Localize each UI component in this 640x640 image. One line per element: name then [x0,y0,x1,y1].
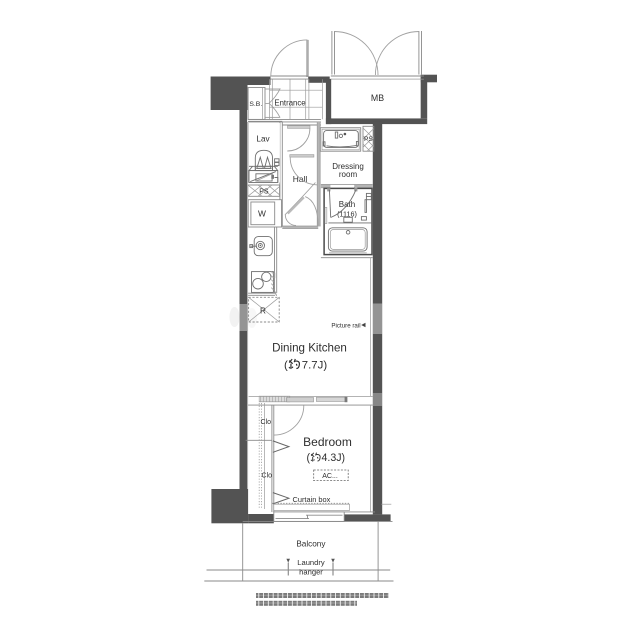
svg-text:Dining Kitchen: Dining Kitchen [272,342,347,355]
svg-text:hanger: hanger [299,568,323,577]
svg-text:Clo: Clo [261,419,272,426]
svg-text:AC...: AC... [322,473,338,480]
svg-text:PS: PS [259,189,269,196]
svg-text:R: R [260,307,266,316]
svg-text:Bath: Bath [339,200,355,209]
svg-text:room: room [339,170,358,179]
svg-text:Bedroom: Bedroom [303,435,352,449]
svg-text:Picture rail: Picture rail [331,323,360,330]
svg-text:Entrance: Entrance [274,99,305,108]
svg-text:Balcony: Balcony [296,540,326,549]
svg-text:S.B.: S.B. [249,101,262,108]
svg-text:W: W [258,209,266,219]
svg-text:7.7J): 7.7J) [302,359,328,371]
svg-text:Lav: Lav [256,135,270,144]
svg-text:PS: PS [364,136,373,143]
svg-text:(: ( [284,359,288,371]
svg-text:4.3J): 4.3J) [322,452,346,464]
svg-text:(: ( [307,452,311,464]
svg-text:Laundry: Laundry [297,558,325,567]
svg-text:MB: MB [371,93,384,103]
svg-text:Clo: Clo [262,473,273,480]
svg-text:Curtain box: Curtain box [293,495,331,504]
